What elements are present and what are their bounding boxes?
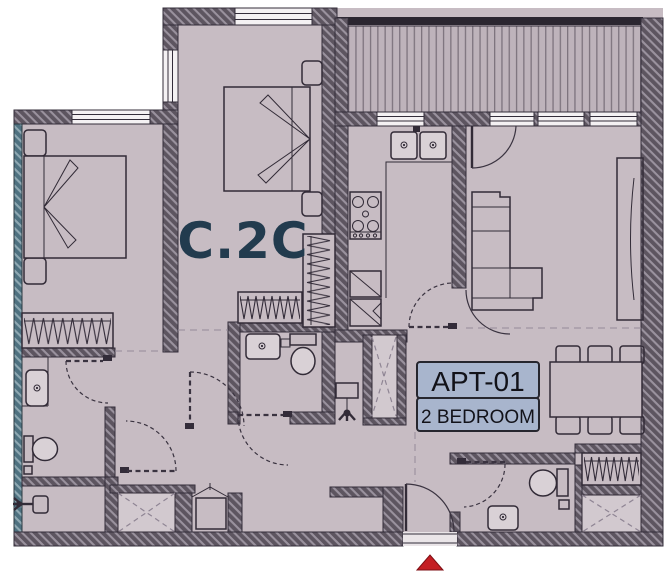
- floor-plan-svg: C.2C APT-01 2 BEDROOM: [0, 0, 665, 576]
- window-balcony-living-3: [590, 112, 637, 126]
- kitchen-shaft: [372, 335, 397, 418]
- wardrobe-bedroom2-south: [238, 292, 302, 323]
- balcony: [337, 17, 643, 112]
- wardrobe-hall: [582, 453, 641, 485]
- apartment-type-label: 2 BEDROOM: [421, 407, 535, 428]
- apartment-label-box: APT-01 2 BEDROOM: [417, 362, 539, 431]
- bathroom-sink: [488, 506, 518, 530]
- wardrobe-bedroom1: [22, 313, 113, 348]
- bed: [224, 87, 310, 191]
- nightstand: [24, 130, 46, 156]
- entrance-marker-icon: [417, 555, 443, 570]
- exterior-wall: [14, 124, 22, 532]
- nightstand: [24, 258, 46, 284]
- window-bedroom2-left: [163, 50, 178, 102]
- floor-plan-page: C.2C APT-01 2 BEDROOM: [0, 0, 665, 576]
- faucet: [413, 126, 420, 132]
- dining-table: [550, 362, 642, 417]
- apartment-id-label: APT-01: [431, 366, 524, 397]
- unit-code-label: C.2C: [177, 212, 308, 270]
- window-balcony-living-2: [538, 112, 584, 126]
- window-balcony-living-1: [490, 112, 534, 126]
- shaft: [582, 495, 641, 532]
- shaft: [118, 493, 175, 532]
- window-bedroom1-top: [72, 110, 150, 124]
- bedroom-1: [22, 130, 126, 348]
- window-bedroom2-top: [235, 8, 312, 25]
- window-balcony-kitchen: [377, 112, 424, 126]
- balcony-deck: [348, 26, 641, 112]
- nightstand: [302, 61, 322, 85]
- balcony-railing: [337, 17, 643, 25]
